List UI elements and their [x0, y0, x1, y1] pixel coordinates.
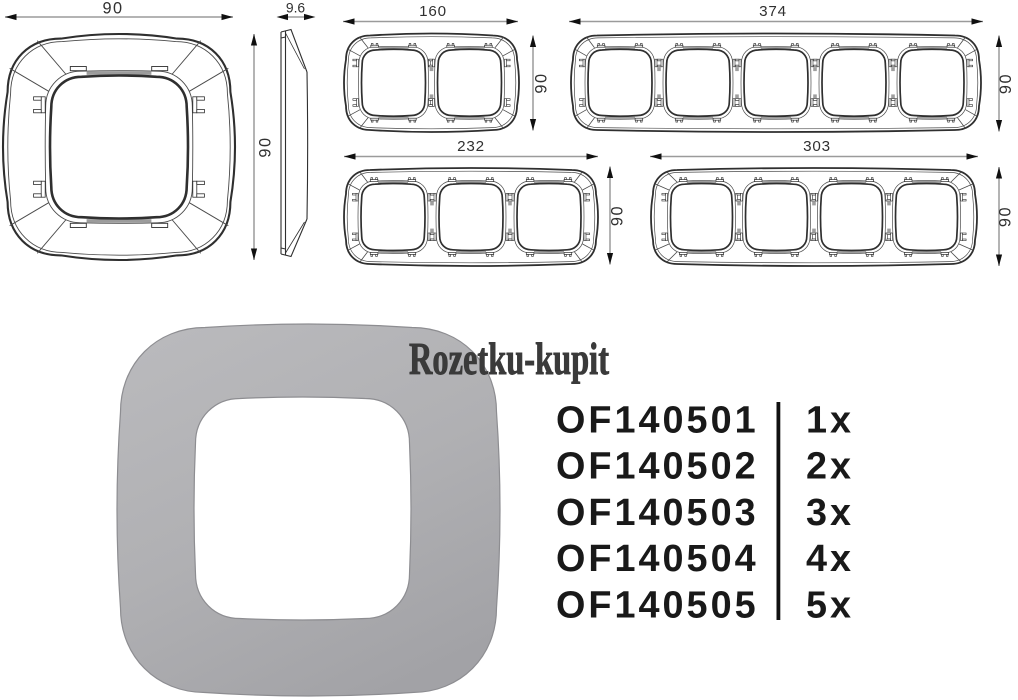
svg-text:4x: 4x — [806, 538, 854, 580]
svg-text:OF140503: OF140503 — [556, 492, 759, 534]
svg-text:1x: 1x — [806, 399, 854, 441]
svg-text:OF140501: OF140501 — [556, 399, 759, 441]
svg-text:90: 90 — [997, 73, 1015, 94]
svg-text:90: 90 — [608, 205, 626, 226]
svg-text:90: 90 — [256, 136, 274, 157]
svg-text:303: 303 — [803, 138, 831, 155]
svg-text:Rozetku-kupit: Rozetku-kupit — [409, 334, 609, 384]
svg-text:160: 160 — [419, 3, 447, 20]
svg-text:5x: 5x — [806, 585, 854, 627]
svg-text:OF140502: OF140502 — [556, 446, 759, 488]
svg-text:OF140504: OF140504 — [556, 538, 759, 580]
svg-text:3x: 3x — [806, 492, 854, 534]
svg-text:9.6: 9.6 — [286, 0, 306, 16]
svg-text:90: 90 — [102, 0, 123, 18]
svg-text:90: 90 — [996, 206, 1014, 227]
svg-text:374: 374 — [759, 3, 787, 20]
svg-text:OF140505: OF140505 — [556, 585, 759, 627]
svg-text:90: 90 — [532, 72, 550, 93]
svg-text:2x: 2x — [806, 446, 854, 488]
svg-text:232: 232 — [457, 138, 485, 155]
